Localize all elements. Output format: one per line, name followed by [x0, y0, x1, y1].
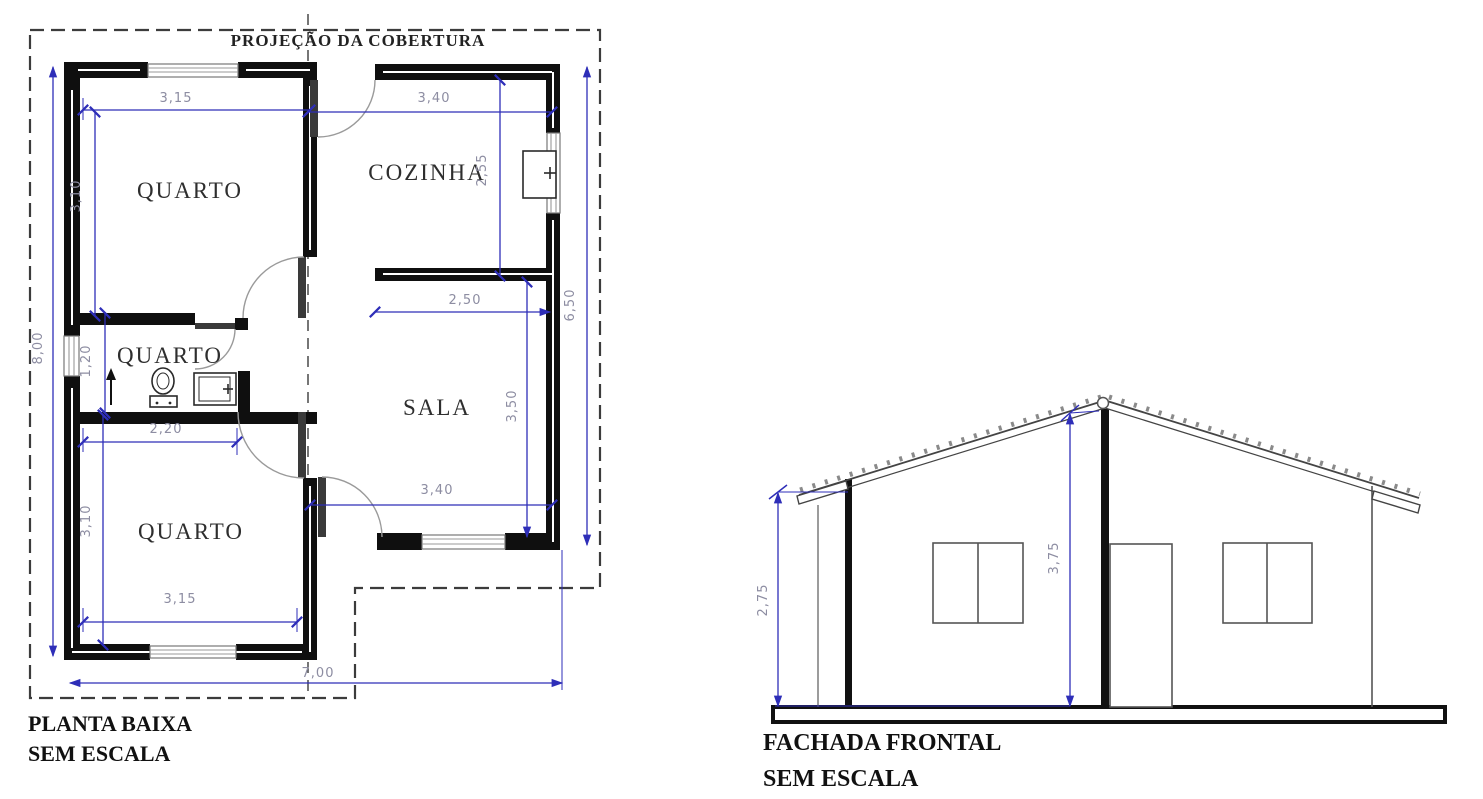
floor-plan-scale-note: SEM ESCALA — [28, 741, 171, 766]
facade-scale-note: SEM ESCALA — [763, 766, 919, 792]
window-quarto1-icon — [148, 64, 238, 77]
dim-total-depth: 8,00 — [31, 332, 46, 365]
drawing-canvas: PROJEÇÃO DA COBERTURA QUARTO COZINHA QUA… — [0, 0, 1483, 799]
door-leaf-icon — [298, 412, 306, 478]
dim-quarto2-depth: 3,10 — [79, 505, 94, 538]
right-eave-fascia — [1372, 491, 1420, 513]
door-leaf-icon — [310, 80, 318, 137]
dim-sala-width: 3,40 — [421, 483, 454, 498]
floor-plan-title: PLANTA BAIXA — [28, 711, 192, 736]
architectural-drawing-sheet: PROJEÇÃO DA COBERTURA QUARTO COZINHA QUA… — [0, 0, 1483, 799]
plan-doors — [195, 80, 382, 537]
dim-cozinha-depth: 2,55 — [475, 154, 490, 187]
facade-base-slab — [773, 707, 1445, 722]
roof-projection-label: PROJEÇÃO DA COBERTURA — [231, 31, 486, 50]
toilet-icon — [150, 368, 177, 407]
floor-plan: PROJEÇÃO DA COBERTURA QUARTO COZINHA QUA… — [28, 14, 600, 766]
dim-facade-ridge-height: 3,75 — [1047, 542, 1062, 575]
door-leaf-icon — [318, 477, 326, 537]
plan-dimensions — [53, 67, 587, 690]
dim-banheiro-width: 2,20 — [150, 422, 183, 437]
room-label-cozinha: COZINHA — [368, 160, 486, 185]
room-label-quarto-2: QUARTO — [138, 519, 244, 544]
room-label-quarto-1: QUARTO — [137, 178, 243, 203]
kitchen-sink-icon — [523, 151, 556, 198]
dim-quarto2-width: 3,15 — [164, 592, 197, 607]
facade-center-post — [1101, 409, 1109, 707]
room-label-sala: SALA — [403, 395, 471, 420]
room-label-banheiro: QUARTO — [117, 343, 223, 368]
facade-title: FACHADA FRONTAL — [763, 730, 1001, 756]
facade-left-wall — [845, 479, 852, 707]
dim-quarto1-depth: 3,10 — [69, 180, 84, 213]
facade-door — [1110, 544, 1172, 707]
drain-arrow-icon — [106, 368, 116, 405]
sink-icon — [194, 373, 236, 405]
dim-facade-wall-height: 2,75 — [756, 584, 771, 617]
dim-sala-depth: 3,50 — [505, 390, 520, 423]
dim-right-side-depth: 6,50 — [563, 289, 578, 322]
facade-right-window-icon — [1223, 543, 1312, 623]
window-banheiro-icon — [64, 336, 79, 376]
dim-cozinha-width: 3,40 — [418, 91, 451, 106]
dim-sala-top-wall: 2,50 — [449, 293, 482, 308]
dim-banheiro-depth: 1,20 — [79, 345, 94, 378]
dim-quarto1-width: 3,15 — [160, 91, 193, 106]
door-leaf-icon — [298, 257, 306, 318]
dim-total-width: 7,00 — [302, 666, 335, 681]
door-leaf-icon — [195, 323, 235, 329]
window-sala-icon — [422, 535, 505, 549]
ridge-ornament-icon — [1098, 398, 1109, 409]
facade-left-window-icon — [933, 543, 1023, 623]
window-quarto2-icon — [150, 646, 236, 658]
facade-drawing: 2,75 3,75 FACHADA FRONTAL SEM ESCALA — [756, 397, 1445, 792]
